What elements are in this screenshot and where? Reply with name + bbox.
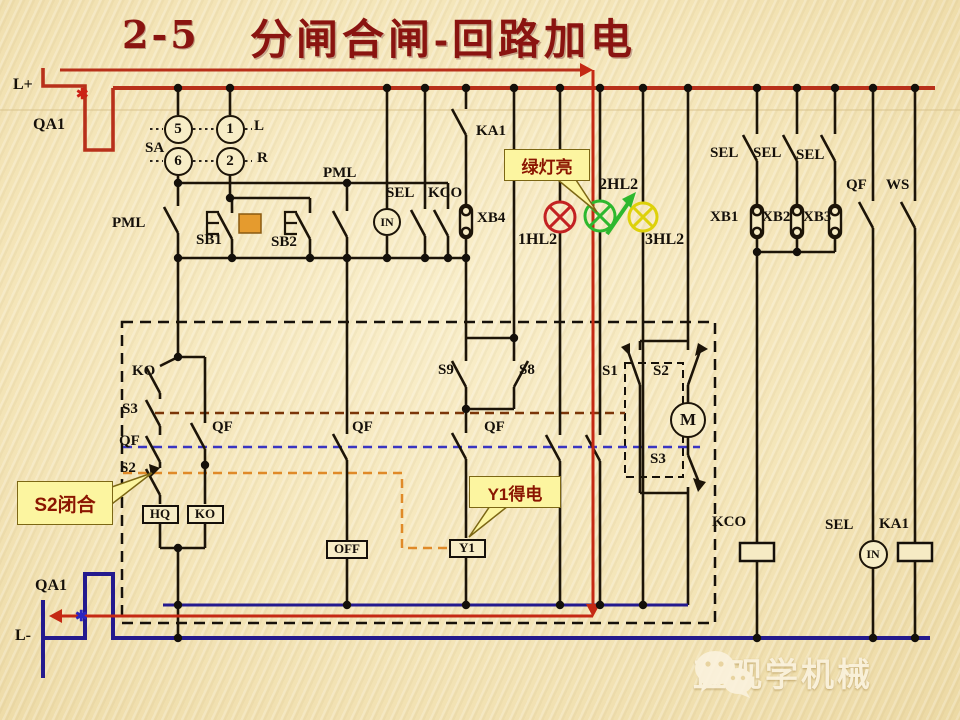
label-sel-r3: SEL xyxy=(796,148,824,163)
mechanism-dashed-box xyxy=(122,322,715,623)
off-coil: OFF xyxy=(326,540,368,559)
label-xb1: XB1 xyxy=(710,210,738,225)
label-l-minus: L- xyxy=(15,628,31,644)
label-kco-mid: KCO xyxy=(428,186,462,201)
label-xb2: XB2 xyxy=(762,210,790,225)
label-sel-mid: SEL xyxy=(386,186,414,201)
circuit-svg xyxy=(0,0,960,720)
hq-coil: HQ xyxy=(142,505,179,524)
label-break-mark-bottom: ✱ xyxy=(75,610,88,625)
red-lamp-1hl2 xyxy=(545,202,575,232)
watermark: 直观学机械 xyxy=(693,648,873,696)
label-s3-left: S3 xyxy=(122,402,138,417)
fuse-xb4 xyxy=(460,205,472,238)
dashed-lines-group xyxy=(122,322,715,623)
label-sel-r2: SEL xyxy=(753,146,781,161)
label-qf-left: QF xyxy=(119,434,140,449)
in-relay-bottom: IN xyxy=(859,540,888,569)
yellow-lamp-3hl2 xyxy=(629,203,657,231)
label-ka1-top: KA1 xyxy=(476,124,506,139)
label-qa1-top: QA1 xyxy=(33,117,65,133)
y1-coil: Y1 xyxy=(449,539,486,558)
kco-coil-symbol xyxy=(740,543,774,561)
label-s2-right: S2 xyxy=(653,364,669,379)
label-lamp3: 3HL2 xyxy=(645,232,684,248)
label-sa-pos-r: R xyxy=(257,151,268,166)
title-text: 分闸合闸-回路加电 xyxy=(250,6,636,67)
label-lamp1: 1HL2 xyxy=(518,232,557,248)
label-sa: SA xyxy=(145,141,164,156)
label-xb4: XB4 xyxy=(477,211,505,226)
label-ka1-bottom: KA1 xyxy=(879,517,909,532)
label-sel-r1: SEL xyxy=(710,146,738,161)
sa-terminal-6: 6 xyxy=(164,147,193,176)
label-sel-bottom: SEL xyxy=(825,518,853,533)
motor: M xyxy=(670,402,706,438)
fuse-xb2 xyxy=(791,205,803,238)
callout-s2-closed: S2闭合 xyxy=(17,481,113,525)
callout-y1-energized: Y1得电 xyxy=(469,476,561,508)
slide-circuit-diagram: 2-5 分闸合闸-回路加电 L+QA1SALRPMLSB1SB2PMLSELKC… xyxy=(0,0,960,720)
title-number: 2-5 xyxy=(122,12,200,57)
label-s9: S9 xyxy=(438,363,454,378)
label-break-mark-top: ✱ xyxy=(76,88,89,103)
label-pml-left: PML xyxy=(112,216,145,231)
label-qa1-bottom: QA1 xyxy=(35,578,67,594)
sa-terminal-2: 2 xyxy=(216,147,245,176)
label-sa-pos-l: L xyxy=(254,119,264,134)
in-relay-mid: IN xyxy=(373,208,401,236)
label-kco-bottom: KCO xyxy=(712,515,746,530)
label-s3-right: S3 xyxy=(650,452,666,467)
ka1-coil-symbol xyxy=(898,543,932,561)
button-block xyxy=(239,214,261,233)
label-qf-right: QF xyxy=(846,178,867,193)
sa-terminal-5: 5 xyxy=(164,115,193,144)
label-qf-midleft: QF xyxy=(212,420,233,435)
sa-terminal-1: 1 xyxy=(216,115,245,144)
flow-arrowheads xyxy=(49,63,600,623)
label-l-plus: L+ xyxy=(13,77,33,93)
label-s1: S1 xyxy=(602,364,618,379)
label-s8: S8 xyxy=(519,363,535,378)
l-plus-entry xyxy=(43,68,113,150)
label-qf-y1: QF xyxy=(484,420,505,435)
ko-coil: KO xyxy=(187,505,224,524)
wechat-icon xyxy=(693,648,755,698)
label-sb2: SB2 xyxy=(271,235,297,250)
label-s2-left: S2 xyxy=(120,461,136,476)
label-qf-mid: QF xyxy=(352,420,373,435)
label-pml-top: PML xyxy=(323,166,356,181)
label-ko-contact: KO xyxy=(132,364,155,379)
label-lamp2: 2HL2 xyxy=(599,177,638,193)
label-sb1: SB1 xyxy=(196,233,222,248)
callout-green-lamp-on: 绿灯亮 xyxy=(504,149,590,181)
label-xb3: XB3 xyxy=(803,210,831,225)
label-ws: WS xyxy=(886,178,909,193)
